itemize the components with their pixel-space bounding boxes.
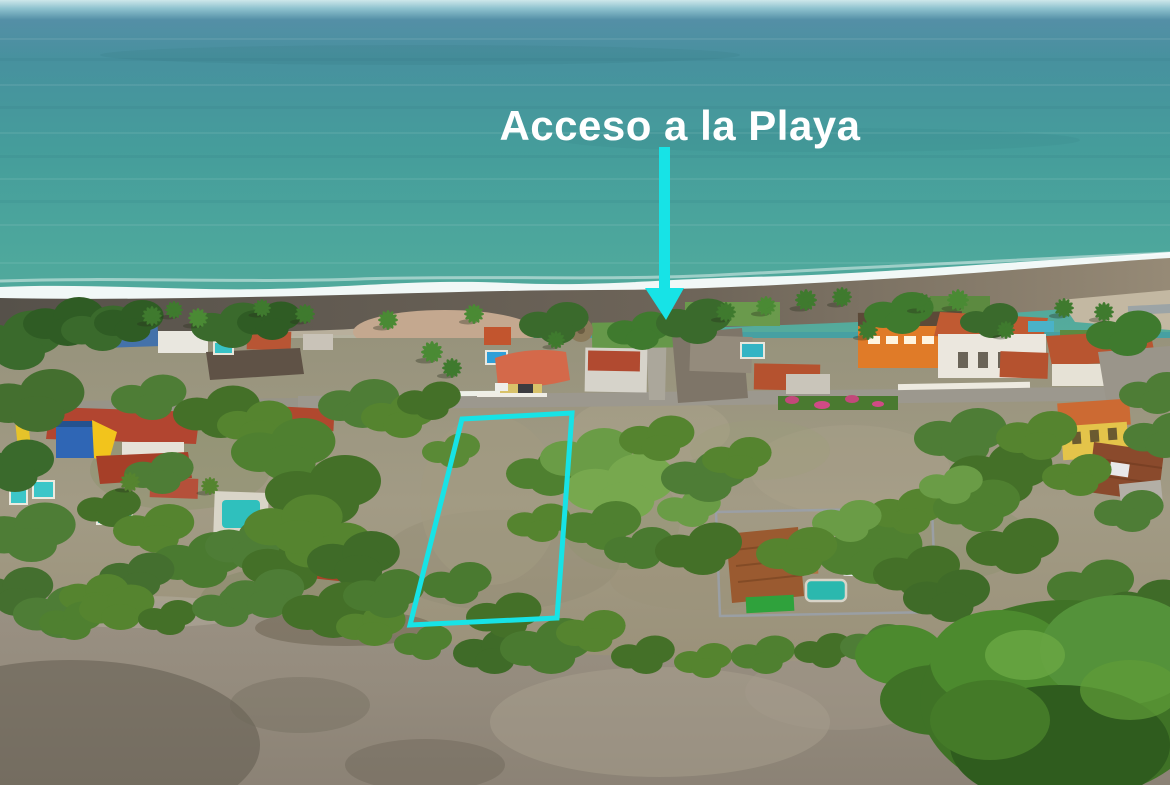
arrow-shaft	[659, 147, 670, 290]
salmon-roof-house	[495, 350, 570, 387]
pool	[1028, 321, 1054, 332]
white-structure	[303, 334, 333, 350]
orange-cabana	[484, 327, 511, 345]
dark-suv	[518, 384, 533, 393]
white-car	[1109, 462, 1130, 478]
green-patch	[746, 595, 795, 613]
beach-access-label: Acceso a la Playa	[499, 102, 860, 149]
aerial-photo: Acceso a la Playa	[0, 0, 1170, 785]
pool	[741, 343, 764, 358]
pool	[806, 580, 846, 601]
white-car	[495, 383, 508, 391]
blue-house	[56, 427, 94, 458]
aerial-photo-canvas: Acceso a la Playa	[0, 0, 1170, 785]
